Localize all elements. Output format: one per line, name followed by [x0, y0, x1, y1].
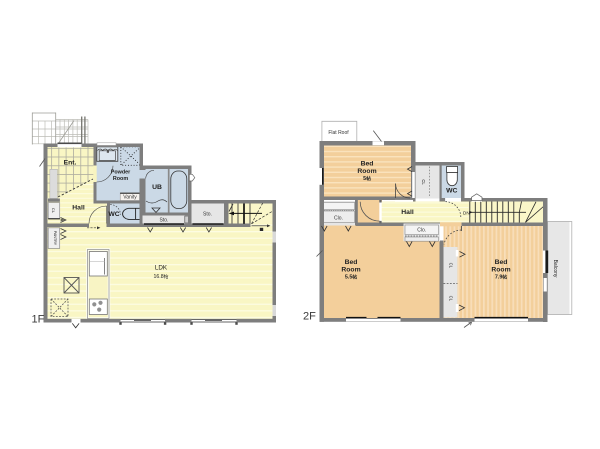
svg-text:CL: CL: [449, 263, 454, 269]
svg-text:Sto.: Sto.: [160, 218, 169, 224]
svg-text:CL: CL: [421, 179, 426, 185]
svg-text:7.9帖: 7.9帖: [495, 274, 508, 281]
svg-text:Sto.: Sto.: [203, 212, 212, 218]
svg-text:Clo.: Clo.: [417, 228, 426, 234]
svg-text:PANTRY: PANTRY: [53, 231, 57, 246]
svg-text:WC: WC: [108, 211, 119, 218]
svg-text:Vanity: Vanity: [123, 195, 137, 201]
svg-text:Flat Roof: Flat Roof: [328, 130, 349, 136]
svg-text:Bed: Bed: [495, 259, 508, 266]
svg-text:5帖: 5帖: [363, 175, 371, 182]
svg-text:Room: Room: [113, 176, 128, 182]
svg-text:Room: Room: [491, 267, 510, 274]
svg-text:DN: DN: [463, 210, 470, 215]
svg-text:Ent.: Ent.: [64, 160, 77, 167]
svg-text:Balcony: Balcony: [552, 260, 558, 278]
svg-text:Room: Room: [341, 267, 360, 274]
svg-text:Hall: Hall: [401, 209, 414, 216]
svg-text:Hall: Hall: [72, 205, 85, 212]
svg-text:Powder: Powder: [111, 170, 131, 176]
svg-text:UB: UB: [152, 184, 162, 191]
svg-text:CL: CL: [51, 208, 56, 214]
svg-text:16.8帖: 16.8帖: [154, 273, 169, 280]
svg-text:Clo.: Clo.: [334, 216, 343, 222]
svg-text:Bed: Bed: [361, 161, 374, 168]
svg-text:5.5帖: 5.5帖: [345, 274, 358, 281]
svg-text:WC: WC: [446, 188, 457, 195]
svg-text:Bed: Bed: [345, 259, 358, 266]
svg-text:CL: CL: [449, 296, 454, 302]
svg-text:2F: 2F: [303, 311, 316, 323]
svg-text:1F: 1F: [32, 314, 45, 326]
svg-text:Room: Room: [357, 168, 376, 175]
svg-text:LDK: LDK: [155, 265, 168, 272]
